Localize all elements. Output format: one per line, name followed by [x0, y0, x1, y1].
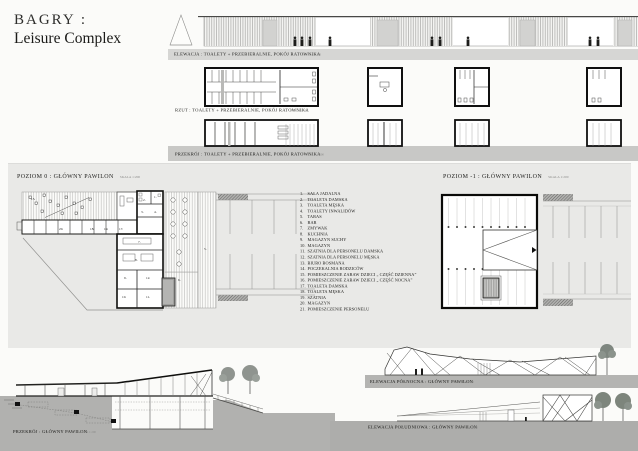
- small-elevation-drawing: ELEWACJA : TOALETY + PRZEBIERALNIE, POKÓ…: [168, 12, 638, 60]
- plan-square-block-3: [587, 68, 621, 106]
- dining-terrace: [22, 192, 117, 220]
- plan-square-block-1: [368, 68, 402, 106]
- plan-level0-drawing: 15. 20. 19. 18. 17. 1. 2. 3. 4. 5. 6. 7.…: [15, 186, 315, 338]
- trees: [219, 365, 260, 394]
- plan-level0-title: POZIOM 0 : GŁÓWNY PAWILON: [17, 174, 114, 180]
- presentation-board: BAGRY : Leisure Complex: [0, 0, 638, 451]
- plan-level-minus1-title: POZIOM -1 : GŁÓWNY PAWILON: [443, 174, 542, 180]
- legend-item: 21.POMIESZCZENIE PERSONELU: [300, 306, 435, 312]
- room-number: 12.: [146, 276, 150, 280]
- room-number: 10.: [122, 295, 126, 299]
- basement-hall: [442, 195, 537, 308]
- room-number: 15.: [31, 197, 35, 201]
- room-number: 6.: [178, 278, 181, 282]
- terrace-round-tables: [165, 192, 198, 272]
- north-elevation-scale: SKALA 1:200: [456, 380, 474, 384]
- elevation-label-bar: ELEWACJA : TOALETY + PRZEBIERALNIE, POKÓ…: [168, 49, 638, 60]
- pavilion-structure: [16, 370, 213, 396]
- south-elevation-drawing: ELEWACJA POŁUDNIOWA : GŁÓWNY PAWILON SKA…: [330, 390, 638, 451]
- room-number: 11.: [146, 295, 150, 299]
- room-number: 4.: [154, 210, 157, 214]
- pier-lines-right: [543, 194, 631, 306]
- room-number: 18.: [90, 227, 94, 231]
- north-elevation-drawing: ELEWACJA PÓŁNOCNA : GŁÓWNY PAWILON SKALA…: [350, 338, 638, 390]
- section-square-block-1: [368, 120, 402, 146]
- room-number: 9.: [124, 276, 127, 280]
- title-block: BAGRY : Leisure Complex: [14, 12, 121, 48]
- basement-interior: [112, 396, 213, 429]
- small-plan-drawing: RZUT : TOALETY + PRZEBIERALNIE, POKÓJ RA…: [168, 62, 638, 114]
- main-section-scale: SKALA 1:200: [78, 430, 96, 434]
- project-title: BAGRY :: [14, 12, 121, 29]
- plan-level0-scale: SKALA 1:200: [120, 175, 140, 179]
- plan-level-minus1-heading: POZIOM -1 : GŁÓWNY PAWILONSKALA 1:200: [443, 174, 568, 180]
- room-number: 1.: [154, 195, 157, 199]
- tent-triangle: [170, 15, 192, 45]
- room-legend-list: 1.SALA JADALNA 2.TOALETA DAMSKA 3.TOALET…: [300, 191, 435, 312]
- section-long-block: [205, 120, 318, 146]
- small-section-drawing: PRZEKRÓJ : TOALETY + PRZEBIERALNIE, POKÓ…: [168, 114, 638, 164]
- plan-long-block: [205, 68, 318, 106]
- room-number: 20.: [59, 227, 63, 231]
- room-number: 2.: [143, 198, 146, 202]
- room-number: 7.: [138, 240, 141, 244]
- south-elevation-scale: SKALA 1:200: [460, 425, 478, 429]
- lattice-end-block: [543, 395, 592, 421]
- room-number: 19.: [104, 227, 108, 231]
- main-section-drawing: PRZEKRÓJ : GŁÓWNY PAWILON SKALA 1:200: [0, 350, 335, 451]
- section-square-block-3: [587, 120, 621, 146]
- main-section-label: PRZEKRÓJ : GŁÓWNY PAWILON: [13, 429, 88, 434]
- room-number: 8.: [135, 258, 138, 262]
- plan-level-minus1-drawing: [435, 186, 631, 318]
- project-subtitle: Leisure Complex: [14, 30, 121, 48]
- top-plan-scale: SKALA 1:100: [290, 108, 308, 112]
- top-section-scale: SKALA 1:100: [306, 152, 324, 156]
- room-number: 17.: [119, 227, 123, 231]
- bar-room: [117, 192, 137, 220]
- top-elevation-scale: SKALA 1:100: [303, 52, 321, 56]
- plan-square-block-2: [455, 68, 489, 106]
- trees: [594, 392, 632, 421]
- stair-core: [481, 276, 501, 300]
- plan-level0-heading: POZIOM 0 : GŁÓWNY PAWILONSKALA 1:200: [17, 174, 140, 180]
- lattice-pavilion: [385, 347, 596, 375]
- ramp-room: [483, 230, 537, 270]
- plan-level-minus1-scale: SKALA 1:200: [548, 175, 568, 179]
- room-number: 3.: [141, 210, 144, 214]
- section-square-block-2: [455, 120, 489, 146]
- elevation-building-band: [198, 17, 638, 46]
- room-number: 5.: [204, 247, 207, 251]
- room-legend: 1.SALA JADALNA 2.TOALETA DAMSKA 3.TOALET…: [300, 191, 435, 317]
- tree: [598, 344, 616, 375]
- ground-mass: [0, 396, 335, 451]
- stair-shaft: [162, 278, 175, 306]
